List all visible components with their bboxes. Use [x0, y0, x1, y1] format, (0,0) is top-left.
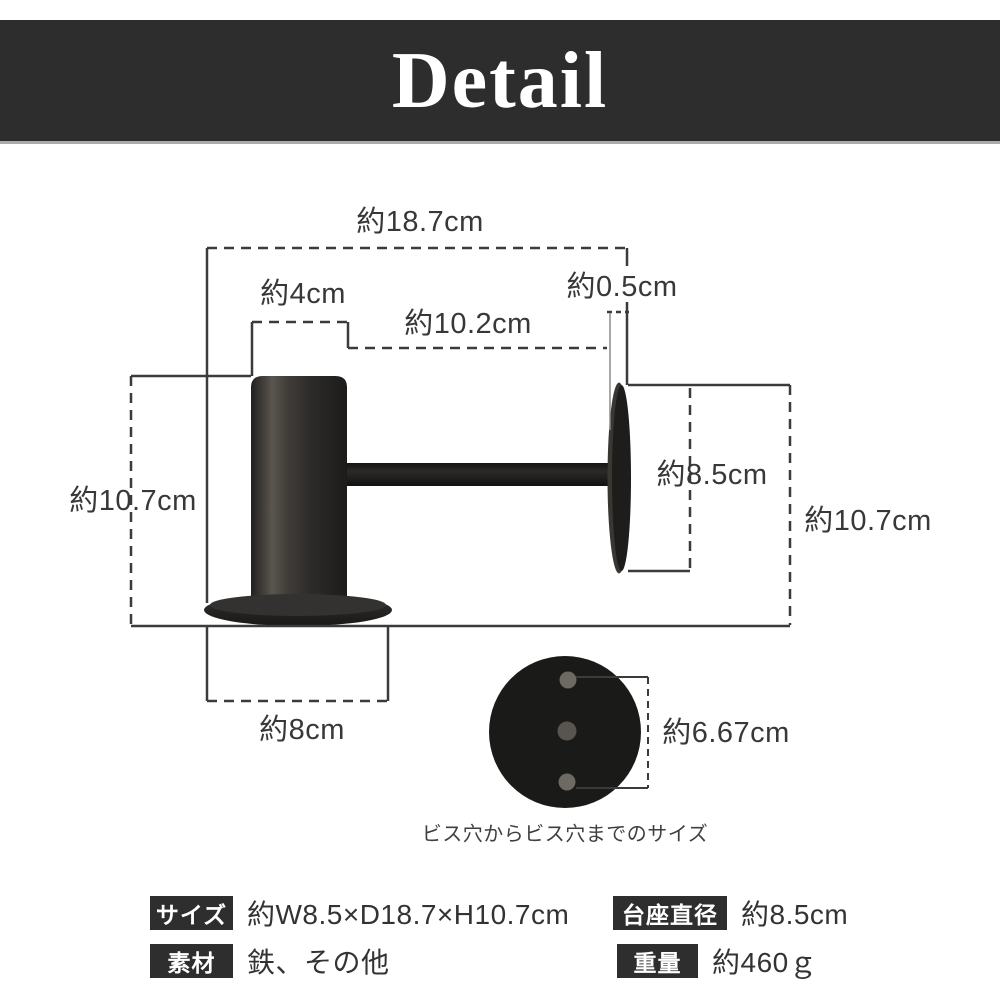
dim-label-screw-hole-distance: 約6.67cm — [662, 709, 790, 751]
dim-label-depth-total: 約18.7cm — [356, 198, 484, 240]
hook-base-flange-top — [210, 594, 386, 616]
dimension-diagram: 約18.7cm 約4cm 約10.2cm 約0.5cm 約10.7cm 約8cm… — [0, 0, 1000, 1000]
dim-label-plate-diameter: 約8.5cm — [657, 451, 768, 493]
dim-label-arm-length: 約10.2cm — [404, 300, 532, 342]
spec-label-base-diameter: 台座直径 — [613, 896, 727, 930]
dim-label-height-right: 約10.7cm — [804, 497, 932, 539]
hook-cylinder — [251, 376, 347, 602]
screw-hole-bottom — [559, 774, 576, 791]
dim-label-height-left: 約10.7cm — [69, 477, 197, 519]
spec-value-base-diameter: 約8.5cm — [741, 893, 848, 933]
spec-label-material: 素材 — [150, 944, 233, 978]
spec-value-weight: 約460ｇ — [712, 941, 817, 981]
spec-row-size: サイズ 約W8.5×D18.7×H10.7cm — [150, 896, 569, 930]
screw-hole-caption: ビス穴からビス穴までのサイズ — [422, 818, 708, 847]
spec-row-base-diameter: 台座直径 約8.5cm — [613, 896, 848, 930]
spec-row-weight: 重量 約460ｇ — [617, 944, 817, 978]
screw-hole-top — [560, 672, 577, 689]
spec-value-material: 鉄、その他 — [247, 941, 390, 981]
screw-hole-center — [558, 722, 577, 741]
spec-label-weight: 重量 — [617, 944, 698, 978]
hook-arm — [346, 463, 614, 486]
base-plate-front-view — [489, 656, 648, 808]
dim-label-pole-diameter: 約4cm — [260, 270, 346, 312]
dim-label-base-width: 約8cm — [259, 706, 345, 748]
product-detail-sheet: Detail — [0, 0, 1000, 1000]
spec-row-material: 素材 鉄、その他 — [150, 944, 390, 978]
wall-plate — [612, 385, 631, 571]
spec-label-size: サイズ — [150, 896, 233, 930]
dim-label-plate-thickness: 約0.5cm — [567, 263, 678, 305]
spec-value-size: 約W8.5×D18.7×H10.7cm — [247, 893, 569, 933]
product-side-view — [204, 376, 631, 626]
